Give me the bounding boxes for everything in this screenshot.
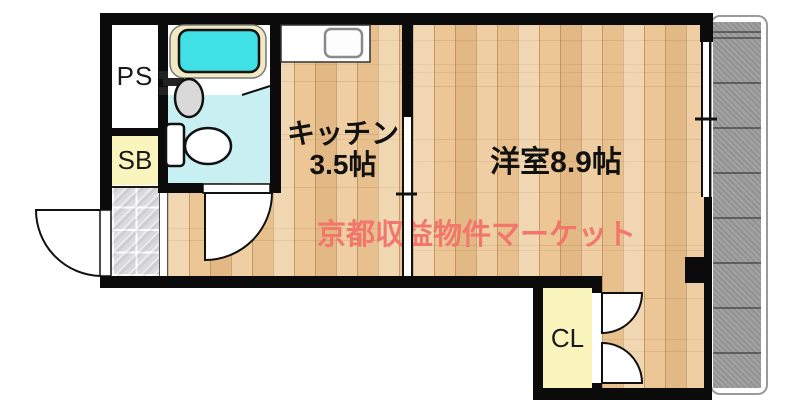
balcony-window <box>701 42 711 197</box>
shoe-box-label: SB <box>118 145 153 176</box>
closet-label: CL <box>551 323 584 354</box>
pipe-space-label: PS <box>117 61 154 92</box>
wall-left <box>100 13 112 210</box>
sliding-door <box>402 117 413 276</box>
wall-right-lower <box>704 197 712 400</box>
wall-bottom-right <box>533 388 712 400</box>
closet-door-frame <box>592 293 602 383</box>
entry-tiles <box>112 186 159 276</box>
kitchen-name: キッチン <box>283 118 403 149</box>
kitchen-size: 3.5帖 <box>283 149 403 180</box>
entry-door-swing <box>36 210 101 276</box>
wall-ps-right <box>158 13 168 186</box>
wall-kitchen-partition <box>402 13 413 117</box>
wall-closet-frame-top <box>592 288 602 293</box>
wall-corner-top-right <box>700 13 713 42</box>
shoe-box: SB <box>112 136 158 185</box>
wall-bottom-left <box>100 276 602 288</box>
pipe-space-box: PS <box>112 24 158 128</box>
exterior-area <box>400 288 535 412</box>
bathroom-interior <box>168 25 270 183</box>
floor-plan: PS SB CL キッチン 3.5帖 洋室8.9帖 京都収益物件マーケット <box>0 0 800 412</box>
watermark-text: 京都収益物件マーケット <box>317 211 636 253</box>
wall-pillar <box>685 257 705 283</box>
balcony <box>713 22 761 388</box>
closet-box: CL <box>543 288 592 388</box>
kitchen-label: キッチン 3.5帖 <box>283 118 403 180</box>
step-edge <box>159 186 168 276</box>
wall-bath-bottom <box>158 183 203 193</box>
wall-closet-left <box>533 276 543 400</box>
entry-door-leaf <box>100 210 111 276</box>
wall-bath-right <box>270 13 281 193</box>
living-room-label: 洋室8.9帖 <box>441 137 671 181</box>
wall-closet-frame-bottom <box>592 383 602 388</box>
